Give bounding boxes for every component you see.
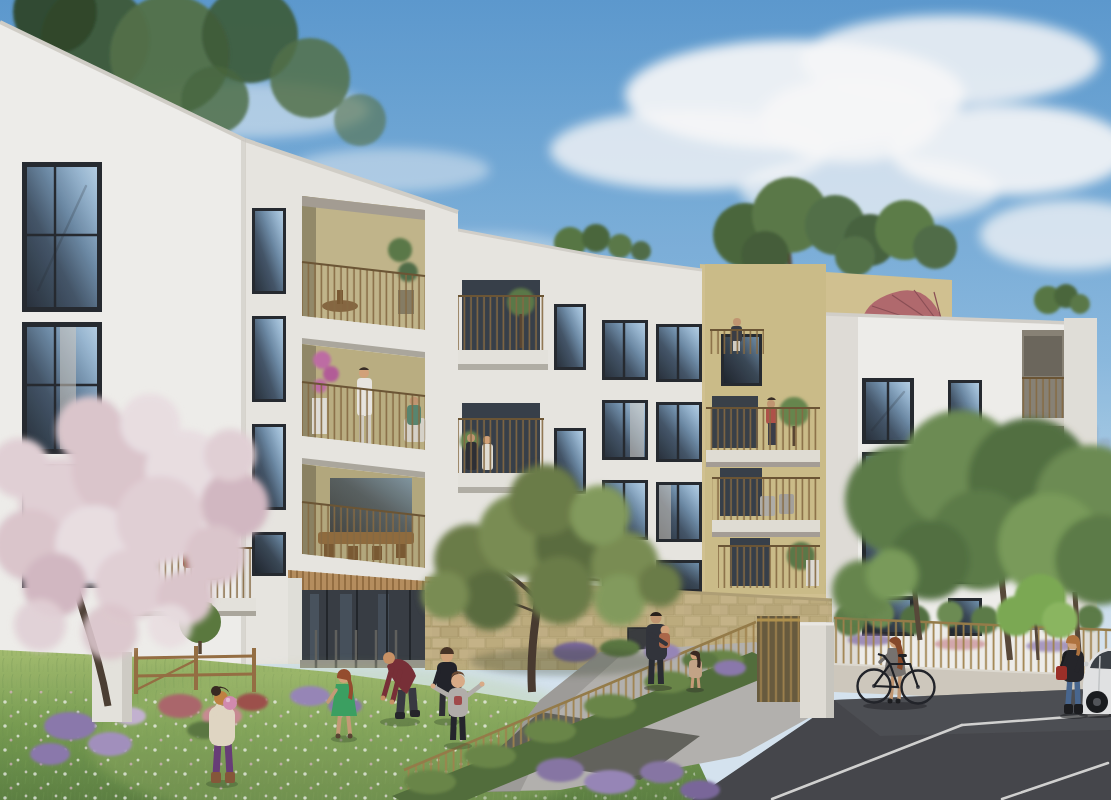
- vignette: [0, 0, 1111, 800]
- architectural-rendering: [0, 0, 1111, 800]
- rendering-canvas: [0, 0, 1111, 800]
